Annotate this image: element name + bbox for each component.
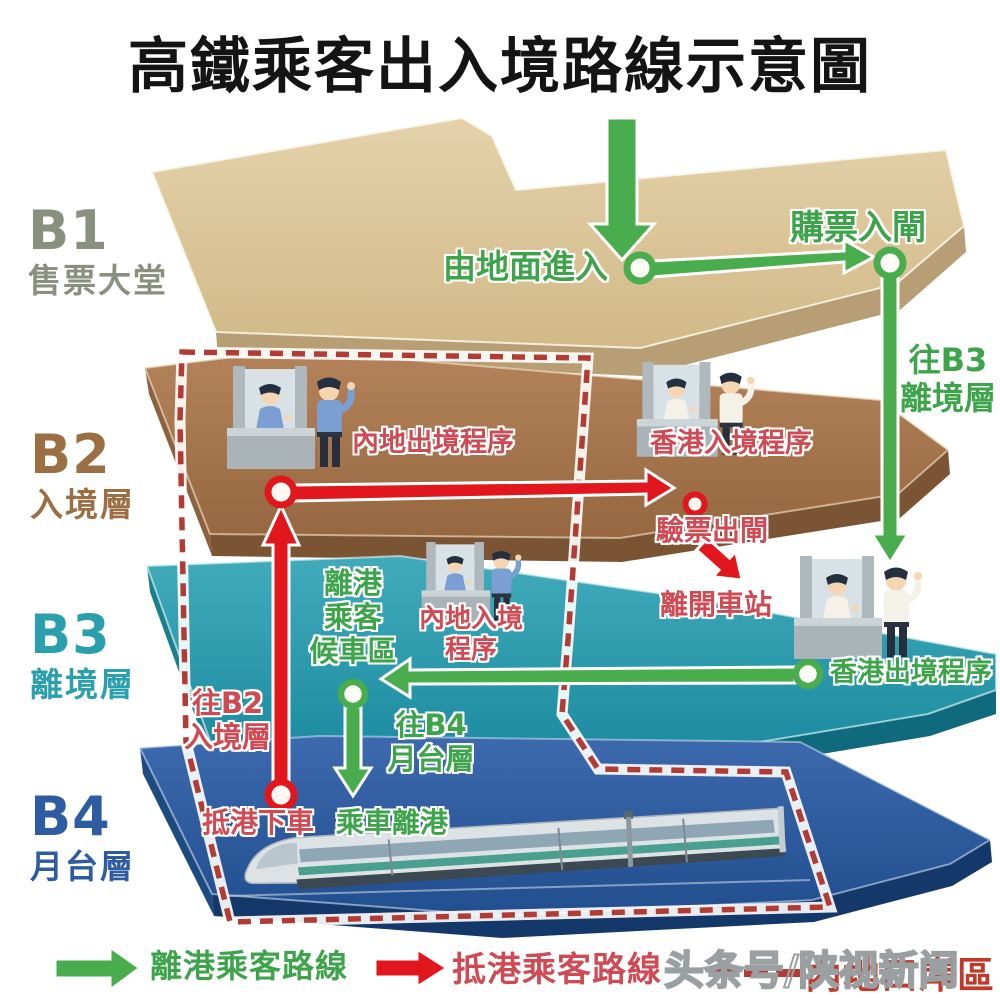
label-departure-waiting-area: 離港 乘客 候車區: [306, 566, 400, 669]
legend-departure-route-label: 離港乘客路線: [150, 948, 348, 986]
label-to-b4-platform-level: 往B4 月台層: [386, 708, 476, 776]
legend-green-arrow-icon: [55, 947, 140, 990]
label-to-b3-departure-level: 往B3 離境層: [898, 342, 998, 418]
diagram-canvas: 高鐵乘客出入境路線示意圖: [0, 0, 1000, 995]
label-hk-exit-procedure: 香港出境程序: [830, 657, 992, 689]
mainland-exit-booth-icon: [227, 366, 355, 469]
label-buy-ticket-enter-gate: 購票入閘: [790, 208, 926, 248]
watermark: 头条号/陕视新闻: [664, 938, 959, 996]
label-arrive-alight: 抵港下車: [202, 806, 314, 839]
label-mainland-exit-procedure: 內地出境程序: [352, 427, 514, 459]
label-ticket-check-exit-gate: 驗票出閘: [656, 514, 768, 547]
legend-arrival-route-label: 抵港乘客路線: [452, 950, 662, 990]
level-label-b1: B1 售票大堂: [28, 204, 168, 297]
level-label-b4: B4 月台層: [30, 790, 135, 883]
label-to-b2-arrival-level: 往B2 入境層: [180, 686, 275, 754]
legend-red-arrow-icon: [375, 949, 447, 987]
label-leave-station: 離開車站: [660, 588, 772, 621]
station-cutaway-scene: [0, 0, 1000, 995]
label-enter-from-ground: 由地面進入: [443, 248, 608, 287]
hk-exit-booth-icon: [794, 556, 922, 659]
label-board-depart: 乘車離港: [336, 806, 448, 839]
label-mainland-entry-procedure: 內地入境 程序: [416, 604, 526, 665]
level-label-b3: B3 離境層: [30, 608, 135, 701]
level-label-b2: B2 入境層: [30, 428, 135, 521]
label-hk-entry-procedure: 香港入境程序: [650, 428, 812, 460]
